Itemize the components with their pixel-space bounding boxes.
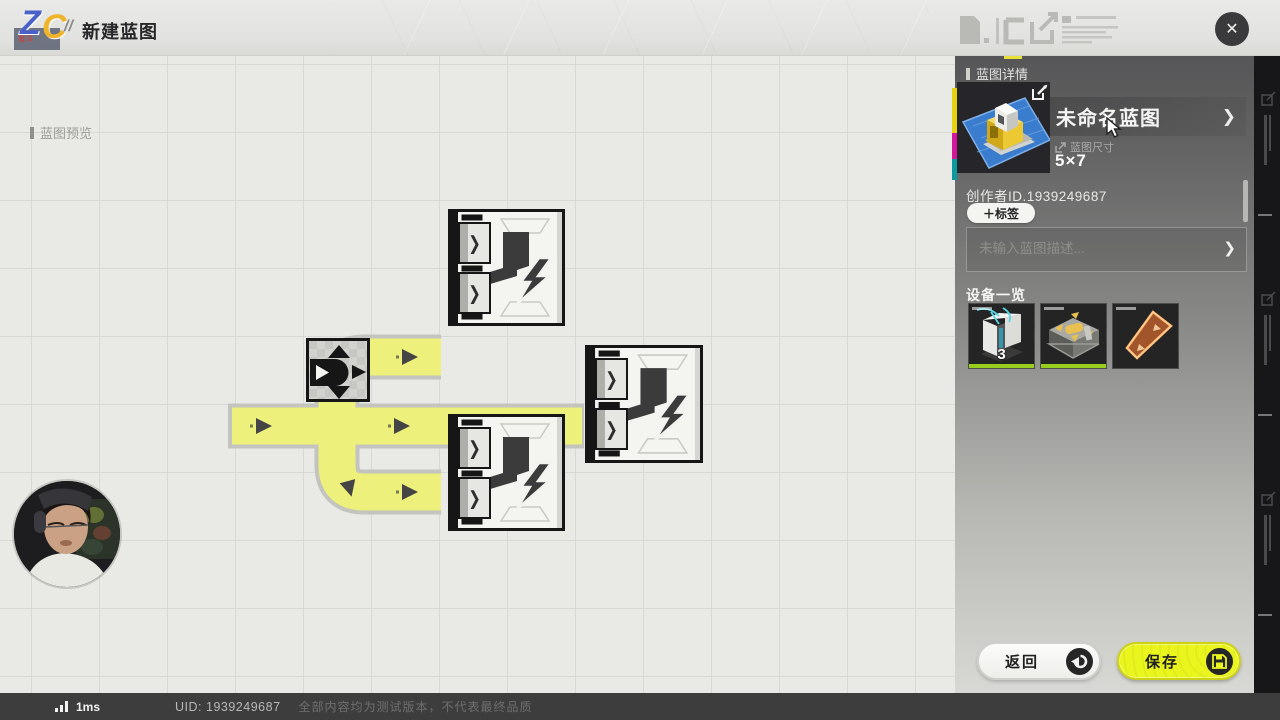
uid-text: UID: 1939249687: [175, 700, 281, 714]
equipment-bar: [969, 364, 1034, 368]
input-slot: ❯: [458, 477, 491, 519]
press-machine-top[interactable]: ❯ ❯: [448, 209, 565, 326]
item-code: [1044, 307, 1064, 310]
blueprint-canvas[interactable]: 蓝图预览: [0, 55, 955, 693]
title-slashes: //: [64, 18, 73, 36]
equipment-art-conveyor: [1113, 304, 1178, 364]
item-code: [1116, 307, 1136, 310]
topbar-deco-lines: [330, 0, 930, 55]
top-bar: Z C 魔泽 // 新建蓝图 ✕: [0, 0, 1280, 56]
ping-value: 1ms: [76, 700, 100, 714]
mouse-cursor: [1104, 117, 1124, 139]
description-placeholder: 未输入蓝图描述...: [979, 237, 1085, 257]
deco-strip-art: [1254, 55, 1280, 693]
equipment-art-splitter: [1041, 304, 1106, 364]
equipment-count: 3: [969, 346, 1034, 363]
disclaimer-text: 全部内容均为测试版本，不代表最终品质: [299, 698, 533, 715]
equipment-card-press[interactable]: 3: [968, 303, 1035, 369]
signal-icon: [55, 701, 68, 712]
item-code: [972, 307, 992, 310]
conveyor-belts: [0, 55, 955, 720]
input-slot: ❯: [458, 427, 491, 469]
back-button-label: 返回: [1005, 651, 1039, 672]
press-machine-right[interactable]: ❯ ❯: [585, 345, 703, 463]
chevron-right-icon: ❯: [1222, 107, 1236, 127]
splitter-machine[interactable]: [306, 338, 370, 402]
back-icon: [1066, 648, 1093, 675]
press-machine-bottom[interactable]: ❯ ❯: [448, 414, 565, 531]
blueprint-name-row[interactable]: 未命名蓝图 ❯: [1050, 97, 1246, 136]
save-icon: [1206, 648, 1233, 675]
page-title: 新建蓝图: [82, 18, 158, 44]
equipment-card-conveyor[interactable]: [1112, 303, 1179, 369]
panel-deco-strip: [1254, 55, 1280, 693]
webcam-feed: [14, 481, 120, 587]
input-slot: ❯: [458, 272, 491, 314]
label-bar: [966, 68, 970, 80]
size-value: 5×7: [1055, 151, 1087, 171]
panel-header-text: 蓝图详情: [976, 64, 1028, 83]
equipment-bar: [1041, 364, 1106, 368]
panel-scrollbar[interactable]: [1243, 180, 1248, 222]
webcam-overlay: [14, 481, 120, 587]
equipment-header: 设备一览: [966, 285, 1026, 305]
logo-subtext: 魔泽: [18, 34, 34, 44]
input-slot: ❯: [595, 408, 628, 450]
accent-dash: [1004, 56, 1022, 59]
equipment-card-splitter[interactable]: [1040, 303, 1107, 369]
description-input[interactable]: 未输入蓝图描述... ❯: [966, 227, 1247, 272]
splitter-icon: [309, 341, 367, 399]
panel-header: 蓝图详情: [966, 64, 1028, 83]
add-tag-button[interactable]: ＋标签: [967, 203, 1035, 223]
thumbnail-edge-strips: [952, 88, 957, 180]
save-button-label: 保存: [1145, 651, 1179, 672]
blueprint-editor-screen: 蓝图预览 ❯ ❯: [0, 0, 1280, 720]
edit-icon[interactable]: [1031, 84, 1048, 101]
save-button[interactable]: 保存: [1117, 642, 1241, 680]
creator-id: 创作者ID.1939249687: [966, 185, 1107, 205]
input-slot: ❯: [595, 358, 628, 400]
status-bar: 1ms UID: 1939249687 全部内容均为测试版本，不代表最终品质: [0, 693, 1280, 720]
close-icon: ✕: [1225, 19, 1238, 39]
close-button[interactable]: ✕: [1215, 12, 1249, 46]
logo-letter-c: C: [42, 8, 67, 47]
header-deco-icons: [958, 12, 1138, 48]
chevron-right-icon: ❯: [1223, 239, 1236, 257]
back-button[interactable]: 返回: [977, 642, 1101, 680]
input-slot: ❯: [458, 222, 491, 264]
